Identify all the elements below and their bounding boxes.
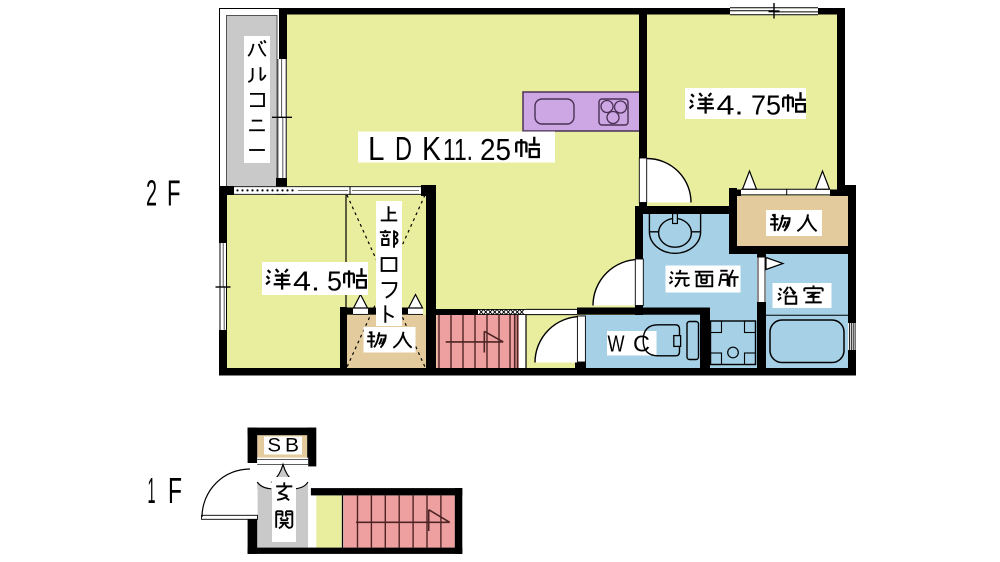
svg-text:D: D (395, 130, 412, 167)
svg-text:4.: 4. (717, 90, 744, 121)
svg-text:L: L (368, 130, 385, 167)
svg-text:W: W (608, 331, 625, 357)
svg-text:75: 75 (751, 90, 781, 121)
svg-text:S: S (268, 436, 282, 457)
svg-text:K: K (422, 130, 441, 167)
svg-text:F: F (167, 172, 181, 213)
svg-text:1: 1 (148, 470, 156, 511)
svg-text:F: F (168, 470, 182, 511)
svg-text:4.: 4. (293, 266, 320, 297)
svg-text:11.: 11. (443, 132, 473, 167)
svg-text:B: B (285, 436, 299, 457)
svg-text:2: 2 (146, 172, 157, 213)
svg-text:25: 25 (480, 132, 511, 167)
svg-text:5: 5 (327, 266, 342, 297)
